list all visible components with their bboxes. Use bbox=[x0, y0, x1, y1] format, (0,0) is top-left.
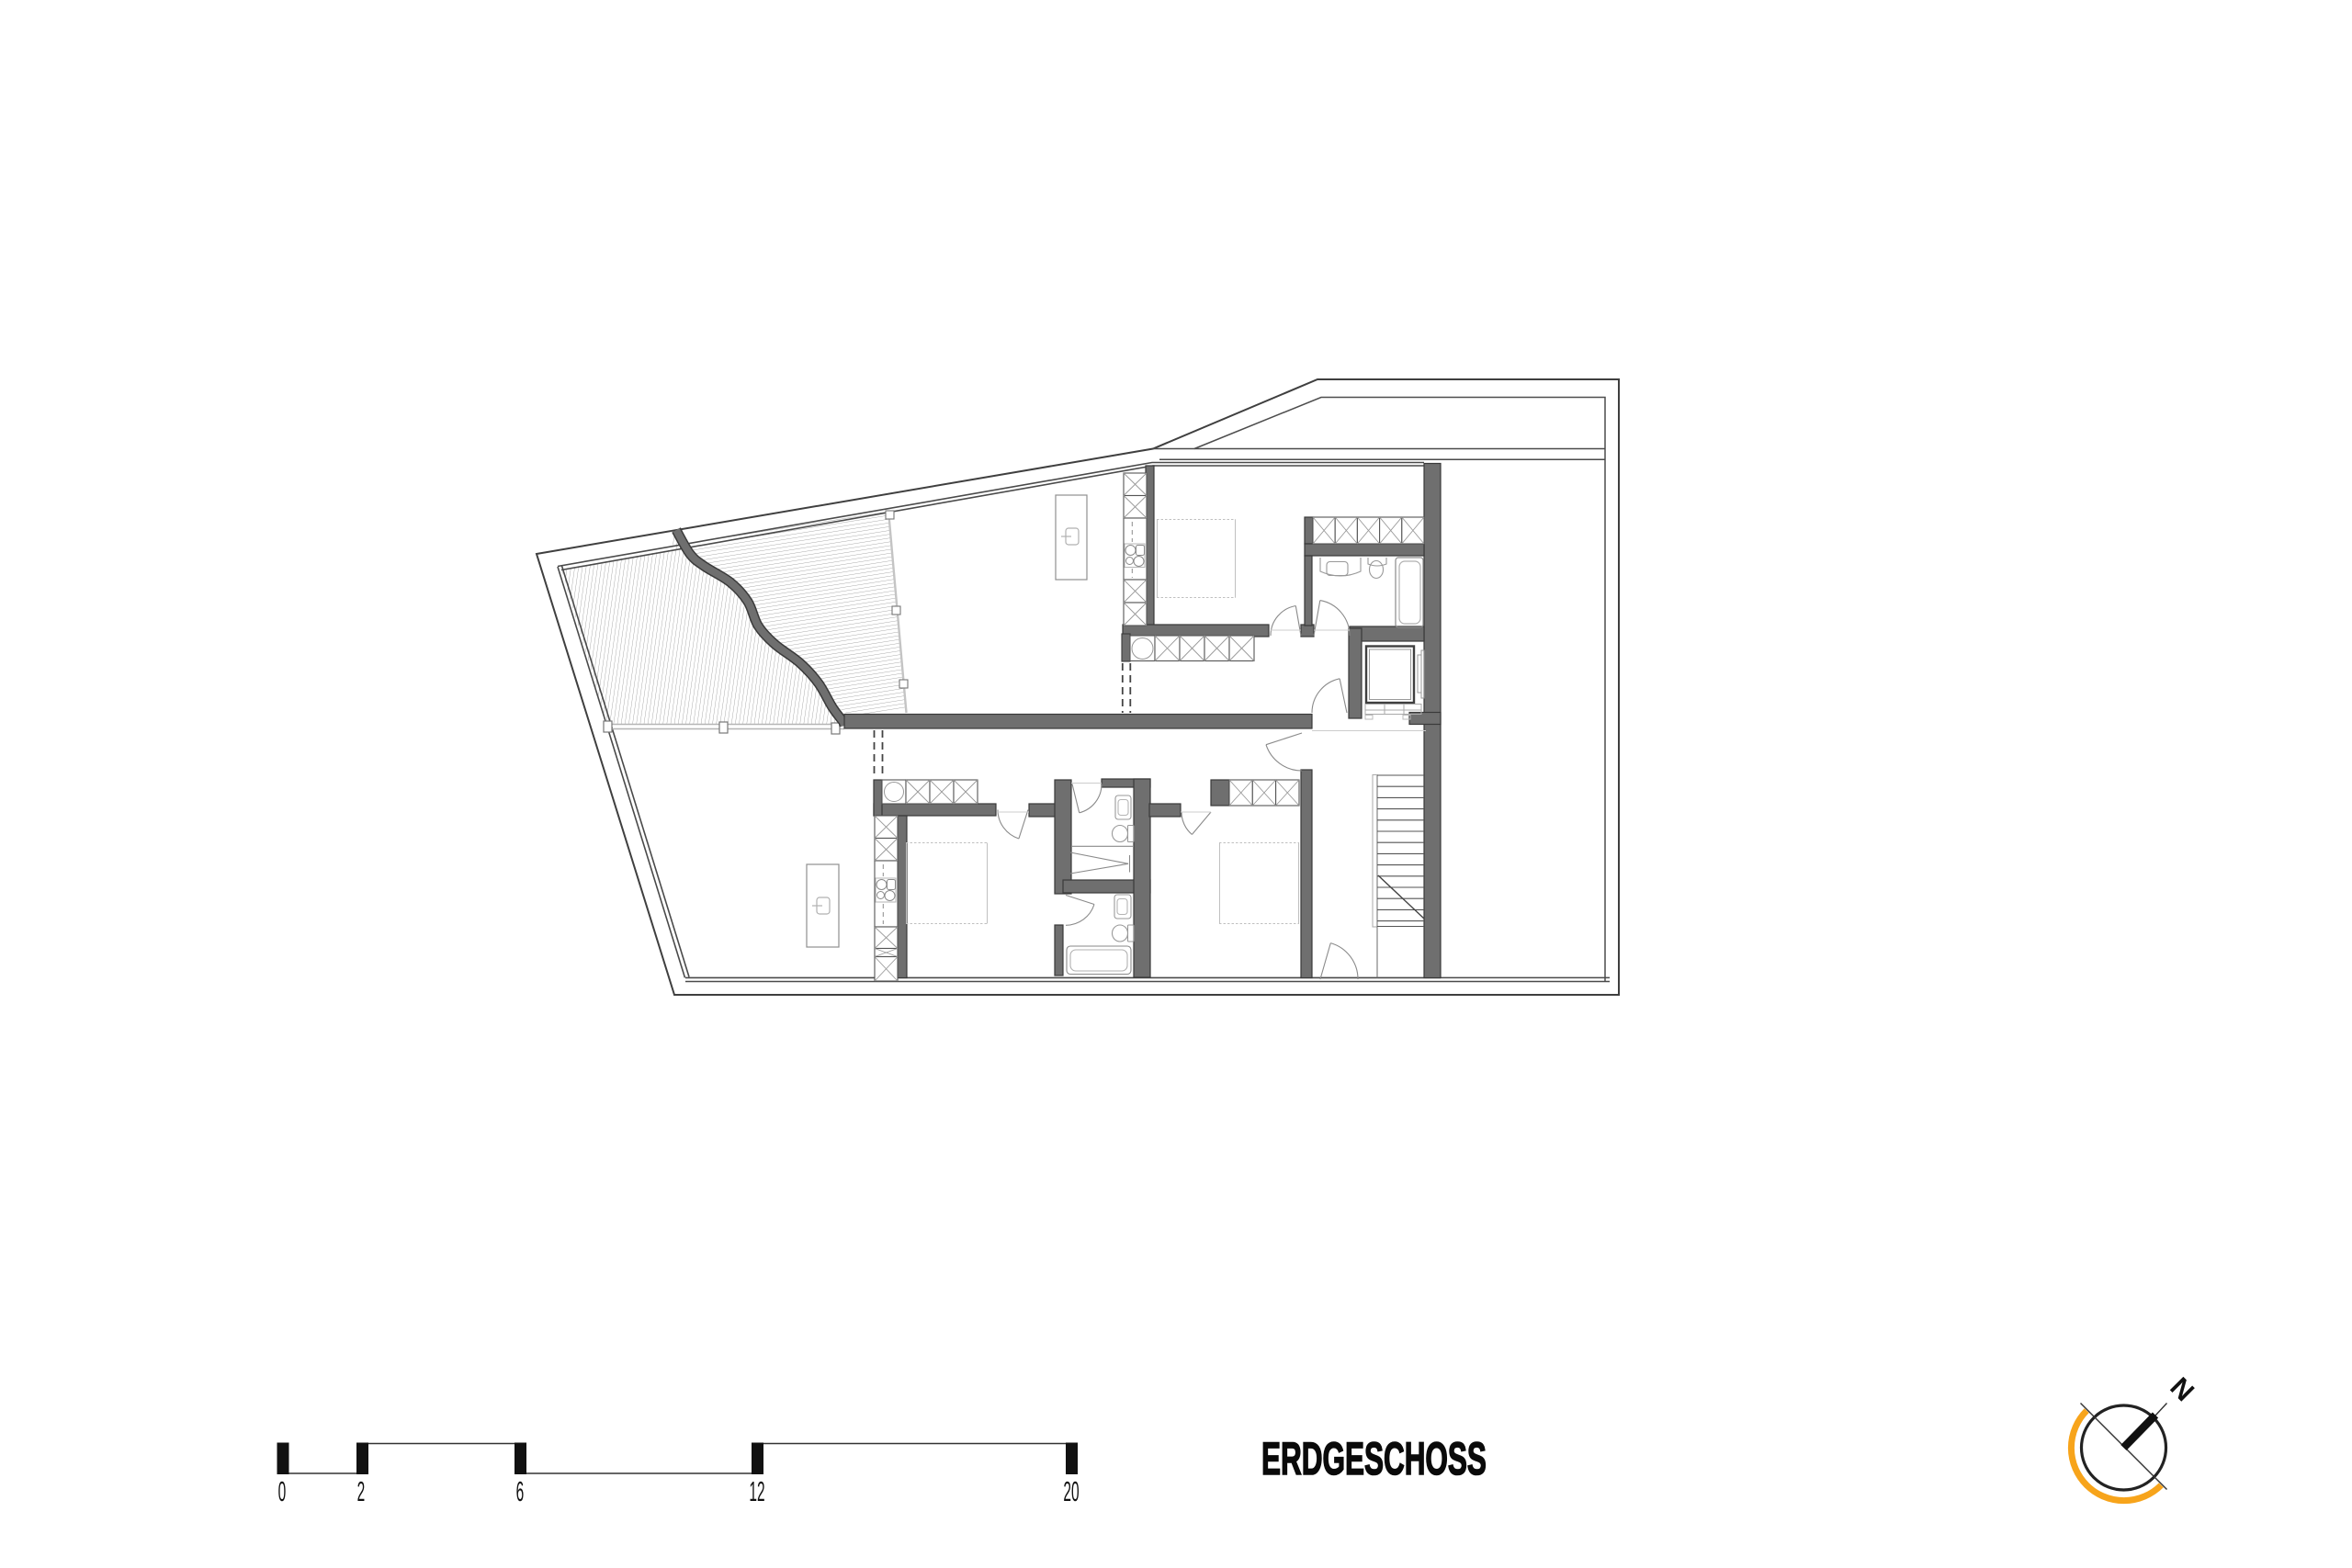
svg-text:12: 12 bbox=[749, 1476, 764, 1507]
svg-text:ERDGESCHOSS: ERDGESCHOSS bbox=[1261, 1433, 1487, 1484]
svg-text:6: 6 bbox=[516, 1476, 525, 1507]
svg-text:2: 2 bbox=[357, 1476, 366, 1507]
svg-text:0: 0 bbox=[278, 1476, 287, 1507]
svg-text:20: 20 bbox=[1063, 1476, 1079, 1507]
svg-text:N: N bbox=[2164, 1371, 2199, 1407]
